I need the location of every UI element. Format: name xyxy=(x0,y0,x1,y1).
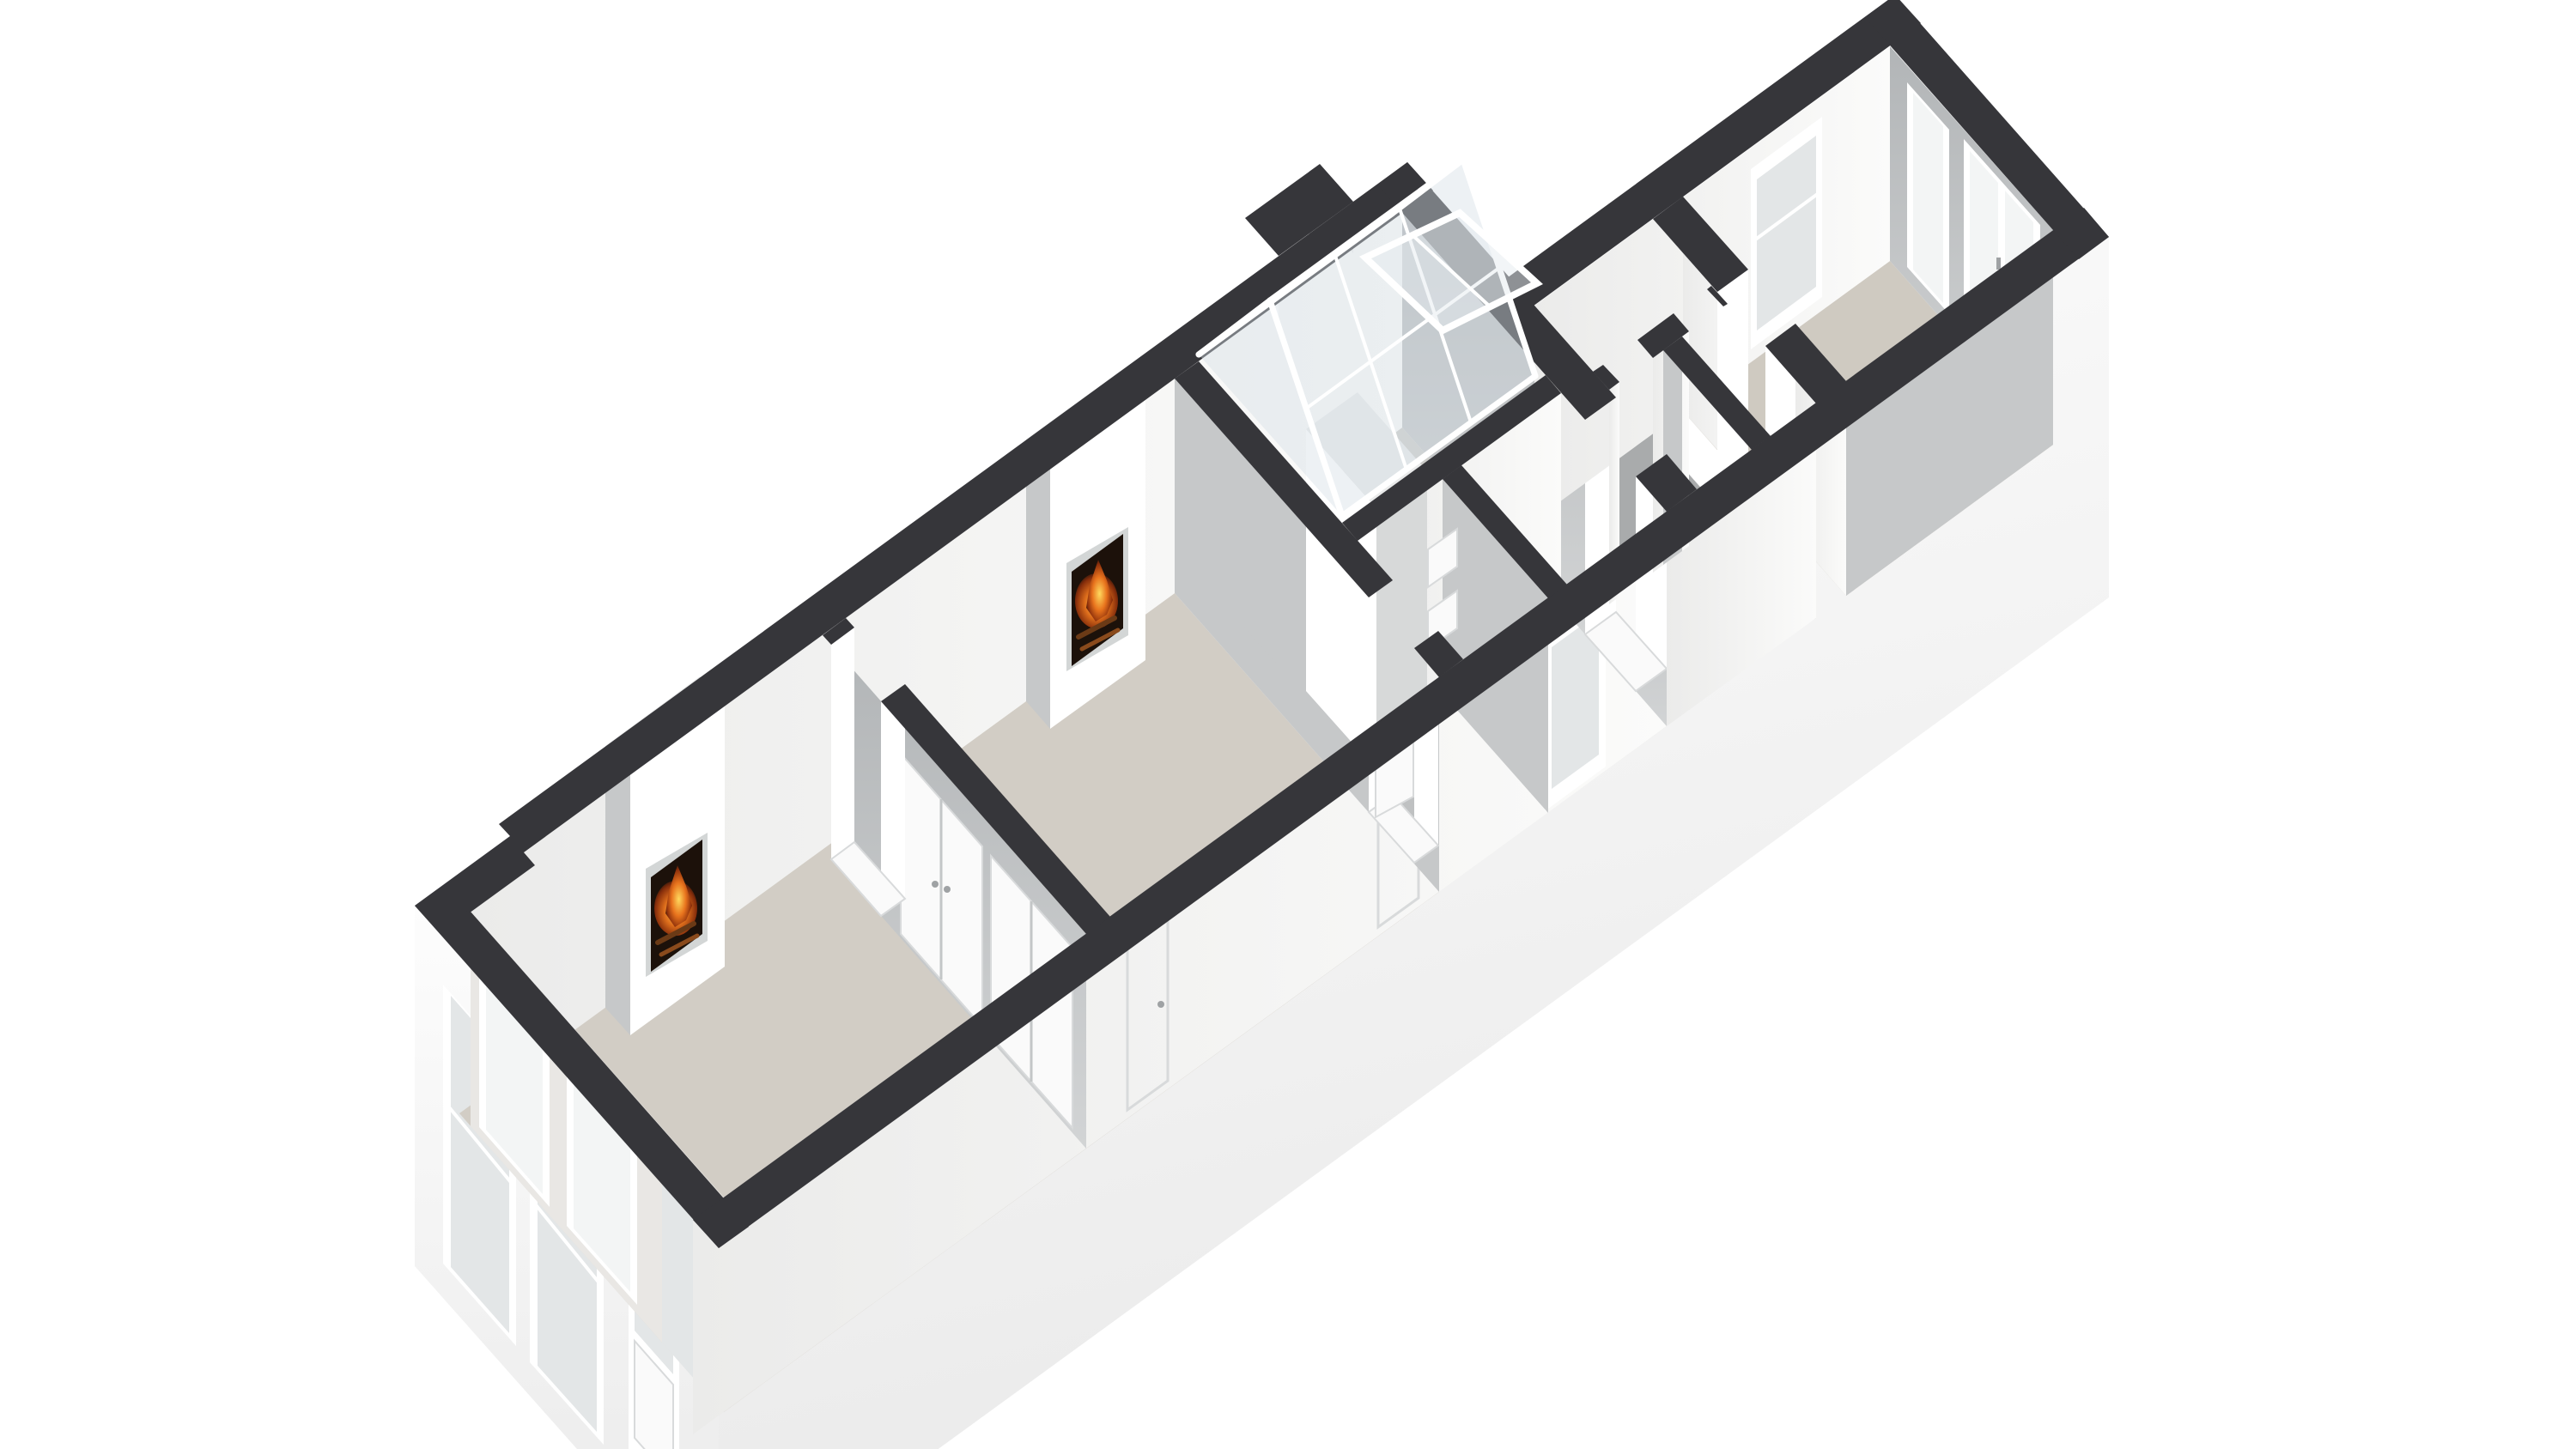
closet-door-jamb-a xyxy=(831,627,854,859)
window-glass xyxy=(1913,93,1943,303)
closet-knob xyxy=(944,886,951,893)
french-door-handles xyxy=(1996,258,2001,270)
closet-knob xyxy=(932,881,939,888)
door-handle xyxy=(1157,1001,1164,1008)
floorplan-canvas xyxy=(0,0,2576,1449)
floorplan-3d-view xyxy=(0,0,2576,1449)
